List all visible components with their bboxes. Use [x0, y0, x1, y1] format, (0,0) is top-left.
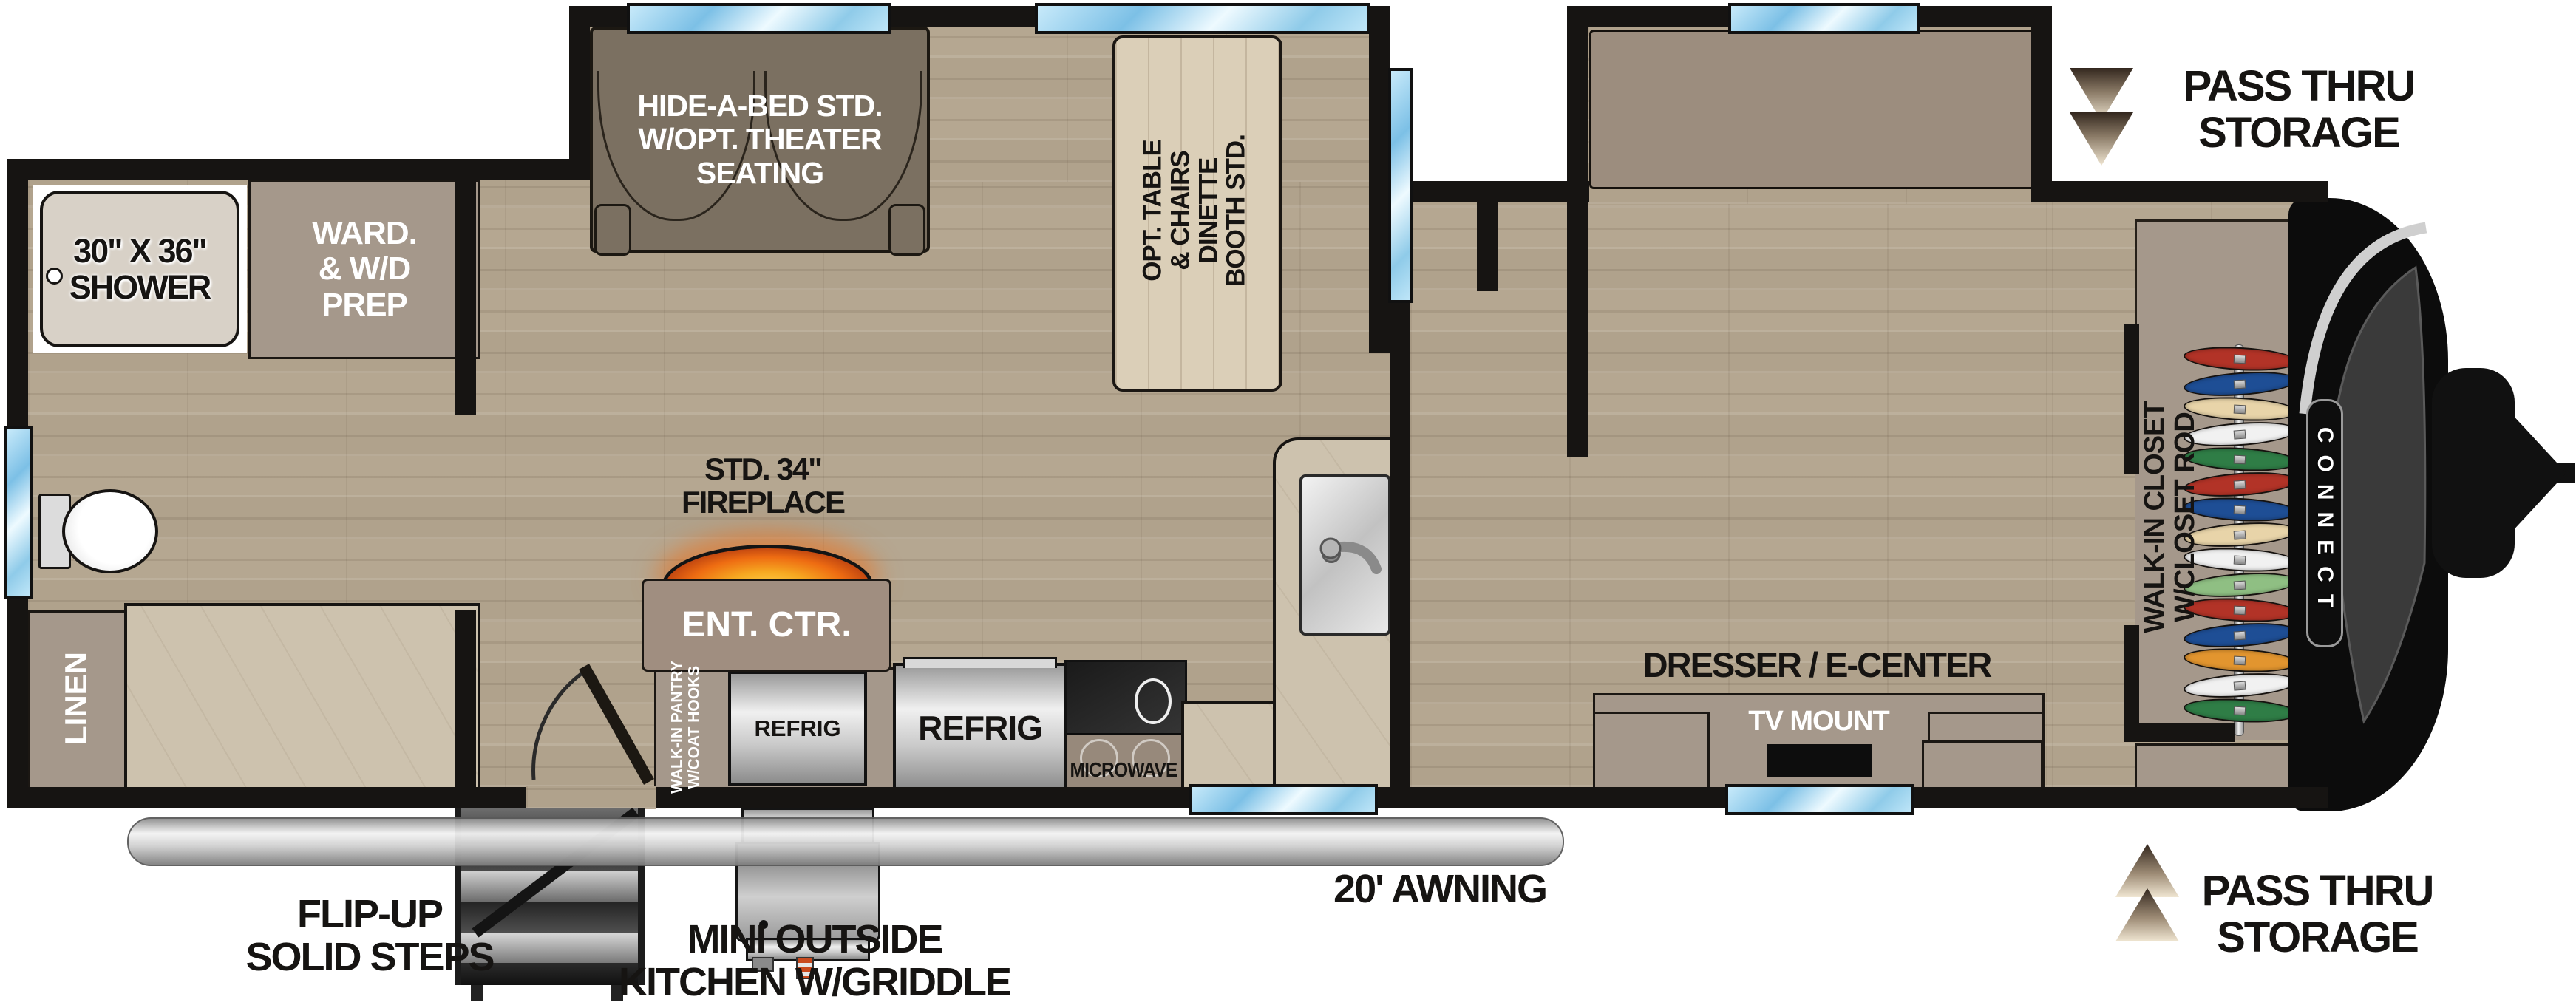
vanity-counter [124, 603, 480, 793]
closet-hanger [2183, 670, 2298, 701]
wardrobe-label: WARD. & W/D PREP [251, 182, 478, 357]
wall-rear-top [7, 159, 590, 180]
awning-label-text: 20' AWNING [1333, 867, 1546, 911]
steps-label: FLIP-UP SOLID STEPS [245, 893, 493, 979]
ent-ctr-label-text: ENT. CTR. [682, 606, 851, 645]
refrig-inner-label-text: REFRIG [754, 716, 840, 741]
closet-hanger [2183, 369, 2298, 400]
brand-text: CONNECT [2312, 427, 2337, 619]
tv-mount-label-text: TV MOUNT [1748, 706, 1889, 737]
linen-label-text: LINEN [58, 652, 93, 745]
outside-kitchen-label-line2: KITCHEN W/GRIDDLE [619, 961, 1010, 1004]
bed-headboard [1589, 30, 2036, 189]
fireplace-label: STD. 34" FIREPLACE [682, 452, 844, 520]
step-leg-left [471, 985, 483, 1001]
refrigerator-inner: REFRIG [728, 671, 867, 786]
toilet-bowl [62, 489, 158, 573]
front-bottom-cabinet [2135, 743, 2303, 791]
wall-bedroom-divider [1390, 294, 1410, 787]
window-sofa-slide [627, 3, 891, 34]
dresser-label-text: DRESSER / E-CENTER [1643, 645, 1991, 684]
wall-bath-divider-upper [455, 180, 476, 415]
shower-label-line1: 30" X 36" [73, 233, 206, 270]
dinette-label: OPT. TABLE & CHAIRS DINETTE BOOTH STD. [1138, 134, 1250, 287]
closet-hanger [2183, 344, 2297, 373]
wardrobe-label-line1: WARD. [312, 216, 417, 251]
shower: 30" X 36" SHOWER [33, 185, 247, 353]
wall-bottom [7, 787, 2328, 808]
shower-label-line2: SHOWER [69, 269, 211, 306]
wardrobe-wd-prep: WARD. & W/D PREP [248, 180, 480, 359]
brand-plate: CONNECT [2306, 399, 2343, 647]
steps-label-line1: FLIP-UP [297, 893, 442, 936]
wall-living-slide-left [569, 6, 590, 180]
wall-closet-bottom [2124, 723, 2235, 742]
refrig-main-label: REFRIG [896, 666, 1064, 790]
entertainment-center: ENT. CTR. [642, 579, 891, 672]
pass-thru-top-line1: PASS THRU [2184, 64, 2415, 110]
wardrobe-label-line2: & W/D [319, 251, 411, 287]
dinette-label-line1: OPT. TABLE [1138, 140, 1166, 282]
hitch-tip [2550, 463, 2575, 483]
closet-hanger [2183, 646, 2297, 675]
wall-front-top [2031, 181, 2328, 202]
wall-closet-left-upper [2124, 324, 2139, 474]
hitch-body [2432, 368, 2515, 578]
bedroom-corner-cabinet [1922, 740, 2043, 791]
pass-thru-bottom-line1: PASS THRU [2202, 868, 2433, 915]
hide-a-bed-sofa: HIDE-A-BED STD. W/OPT. THEATER SEATING [590, 27, 930, 253]
rv-floorplan: 30" X 36" SHOWER WARD. & W/D PREP LINEN … [0, 0, 2576, 1008]
sink-drain [1322, 544, 1341, 563]
ent-ctr-label: ENT. CTR. [644, 581, 889, 670]
wall-notch-bottom [1409, 181, 1589, 202]
refrigerator-main: REFRIG [893, 663, 1067, 793]
fireplace-label-line1: STD. 34" [704, 452, 821, 486]
outside-kitchen-label: MINI OUTSIDE KITCHEN W/GRIDDLE [619, 918, 1010, 1004]
sofa-label-line1: HIDE-A-BED STD. [637, 89, 882, 123]
kitchen-sink [1299, 474, 1391, 636]
closet-hanger [2183, 696, 2297, 725]
window-rear-side [4, 426, 33, 599]
closet-label-line1: WALK-IN CLOSET [2140, 401, 2170, 633]
pantry-label: WALK-IN PANTRY W/COAT HOOKS [669, 661, 702, 794]
pantry-label-line1: WALK-IN PANTRY [669, 661, 686, 794]
wardrobe-label-line3: PREP [322, 287, 407, 323]
linen-label: LINEN [58, 652, 94, 745]
fireplace-label-line2: FIREPLACE [682, 486, 844, 519]
pantry-label-line2: W/COAT HOOKS [686, 666, 703, 789]
entry-door-opening [526, 786, 656, 809]
dinette-label-line4: BOOTH STD. [1223, 134, 1251, 287]
microwave-label-text: MICROWAVE [1070, 758, 1177, 781]
wall-bed-slide-right [2031, 6, 2052, 202]
dresser-label: DRESSER / E-CENTER [1643, 644, 1991, 685]
refrig-main-label-text: REFRIG [918, 709, 1042, 747]
closet-label-line2: W/CLOSET ROD [2170, 412, 2201, 622]
dinette-label-line2: & CHAIRS [1166, 151, 1194, 270]
pass-thru-bottom-label: PASS THRU STORAGE [2202, 868, 2433, 961]
wall-living-slide-right [1369, 6, 1390, 353]
window-dinette-side [1388, 68, 1413, 303]
cooktop-pot-icon [1135, 678, 1172, 724]
wall-bath-divider-lower [455, 610, 476, 787]
shower-label: 30" X 36" SHOWER [33, 185, 247, 353]
pass-thru-bottom-line2: STORAGE [2217, 915, 2418, 961]
closet-upper-shelf [2135, 219, 2298, 346]
closet-label: WALK-IN CLOSET W/CLOSET ROD [2140, 401, 2201, 633]
sofa-label: HIDE-A-BED STD. W/OPT. THEATER SEATING [593, 30, 927, 250]
awning-label: 20' AWNING [1333, 866, 1546, 912]
outside-kitchen-label-line1: MINI OUTSIDE [687, 918, 942, 961]
pass-thru-top-label: PASS THRU STORAGE [2184, 64, 2415, 156]
window-bed-slide [1728, 3, 1920, 34]
steps-label-line2: SOLID STEPS [245, 936, 493, 978]
pass-thru-top-line2: STORAGE [2198, 110, 2399, 157]
wall-bed-slide-left [1567, 6, 1588, 457]
tv-mount-label: TV MOUNT [1748, 706, 1889, 738]
pass-thru-top-arrow-2 [2070, 112, 2133, 166]
refrig-inner-label: REFRIG [731, 674, 864, 783]
window-kitchen [1189, 784, 1378, 815]
wall-closet-left-lower [2124, 625, 2139, 739]
microwave-label: MICROWAVE [1070, 758, 1177, 782]
dresser-section-left [1595, 712, 1710, 789]
window-dinette-slide [1035, 3, 1370, 34]
dresser-tv [1767, 744, 1872, 777]
dinette-label-line3: DINETTE [1194, 158, 1223, 264]
wall-bedroom-entry-stub [1477, 202, 1498, 291]
window-bedroom-bottom [1725, 784, 1914, 815]
sofa-label-line3: SEATING [696, 157, 823, 190]
awning-tube [127, 817, 1564, 866]
sofa-label-line2: W/OPT. THEATER [638, 123, 881, 156]
